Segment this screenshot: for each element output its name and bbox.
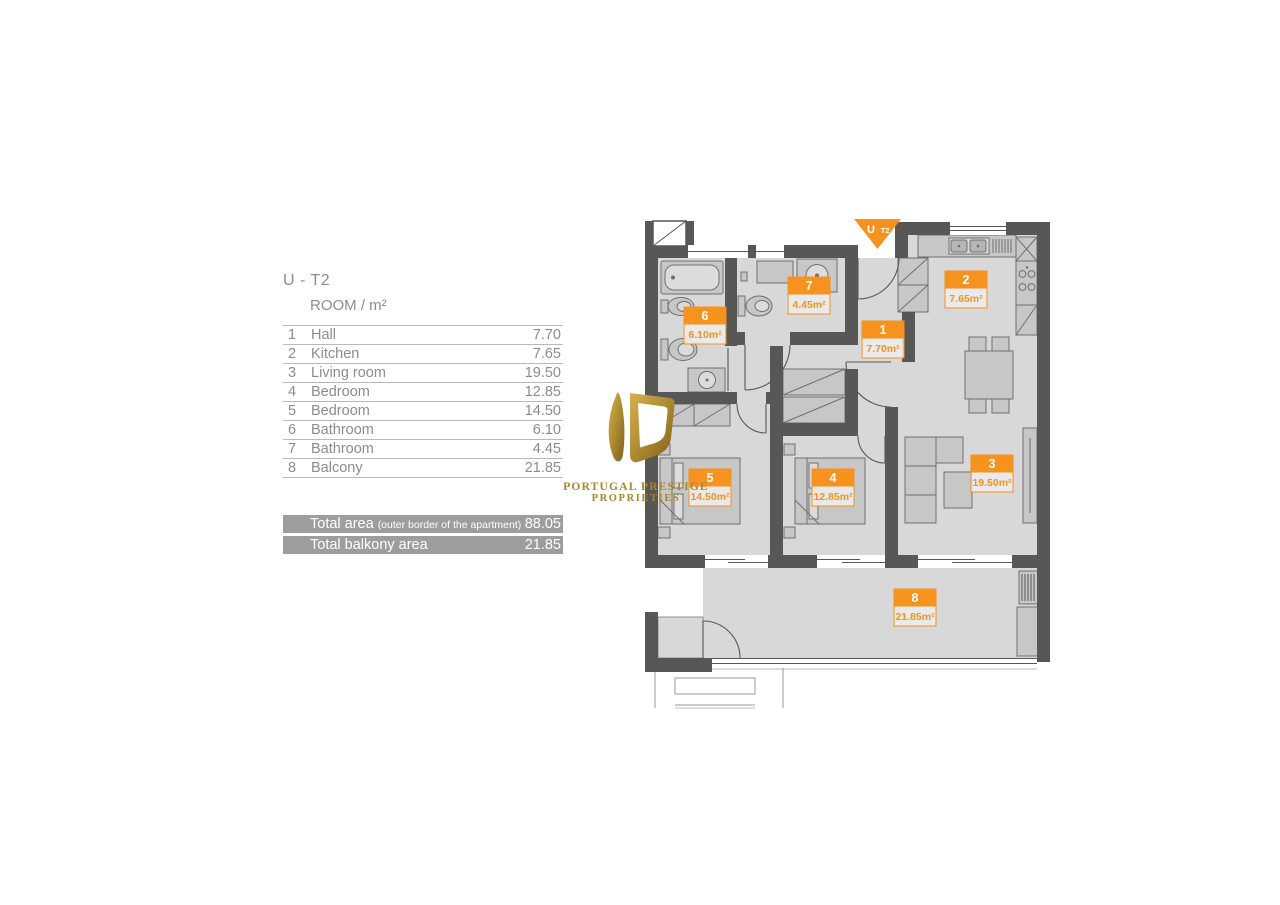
- ground-outlines: [655, 668, 1037, 708]
- brand-logo-monogram: [556, 390, 716, 474]
- svg-text:7.65m²: 7.65m²: [949, 293, 983, 305]
- svg-text:3: 3: [989, 457, 996, 471]
- svg-text:19.50m²: 19.50m²: [972, 477, 1012, 489]
- room-label-2: 2 7.65m²: [945, 271, 987, 308]
- entrance-marker: U T2: [854, 219, 901, 249]
- balcony-railing: [712, 659, 1037, 664]
- svg-text:6.10m²: 6.10m²: [688, 329, 722, 341]
- svg-text:12.85m²: 12.85m²: [813, 491, 853, 503]
- ventilation-shaft: [645, 221, 694, 246]
- svg-text:7.70m²: 7.70m²: [866, 343, 900, 355]
- brand-name-line1: PORTUGAL PRESTIGE: [556, 481, 716, 493]
- svg-text:4: 4: [830, 471, 837, 485]
- svg-text:2: 2: [963, 273, 970, 287]
- hall-closet: [898, 258, 928, 312]
- brand-logo: PORTUGAL PRESTIGE PROPRIETIES: [556, 390, 716, 512]
- svg-text:1: 1: [880, 323, 887, 337]
- svg-text:7: 7: [806, 279, 813, 293]
- room-label-7: 7 4.45m²: [788, 277, 830, 314]
- room-label-8: 8 21.85m²: [894, 589, 936, 626]
- svg-text:8: 8: [912, 591, 919, 605]
- brand-name-line2: PROPRIETIES: [556, 493, 716, 504]
- room-label-3: 3 19.50m²: [971, 455, 1013, 492]
- svg-text:U: U: [867, 224, 875, 236]
- page: U - T2 ROOM / m² 1 Hall 7.70 2 Kitchen 7…: [0, 0, 1280, 905]
- svg-text:6: 6: [702, 309, 709, 323]
- svg-text:4.45m²: 4.45m²: [792, 299, 826, 311]
- svg-text:T2: T2: [881, 226, 890, 235]
- room-label-1: 1 7.70m²: [862, 321, 904, 358]
- balcony-fixtures: [1017, 571, 1038, 656]
- svg-text:21.85m²: 21.85m²: [895, 611, 935, 623]
- room-label-4: 4 12.85m²: [812, 469, 854, 506]
- room-label-6: 6 6.10m²: [684, 307, 726, 344]
